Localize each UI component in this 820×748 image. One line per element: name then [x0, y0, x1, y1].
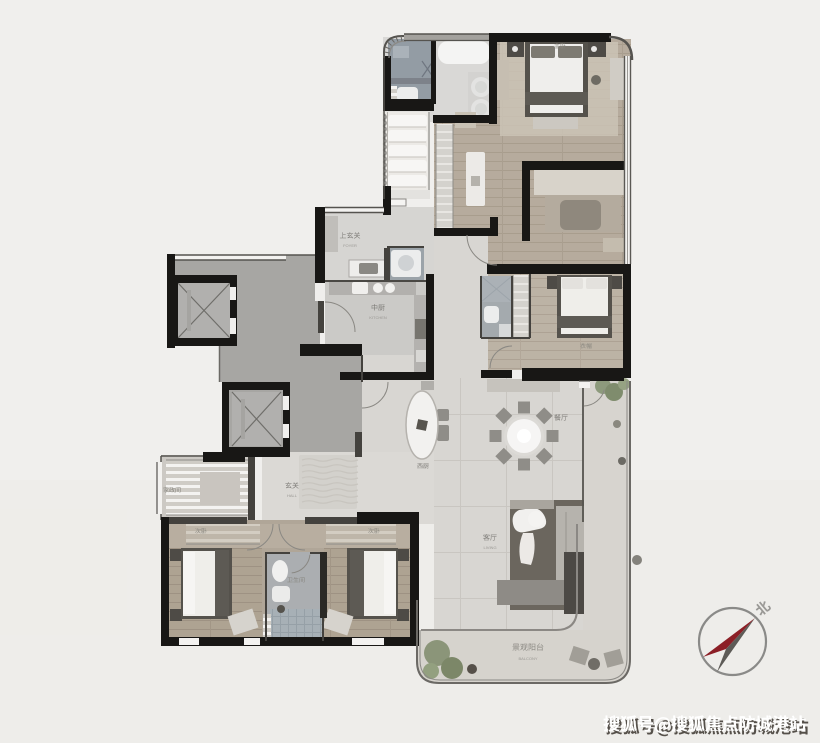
svg-text:KITCHEN: KITCHEN	[369, 315, 387, 320]
svg-text:HALL: HALL	[287, 493, 298, 498]
svg-text:LIVING: LIVING	[483, 545, 496, 550]
svg-text:BALCONY: BALCONY	[518, 656, 537, 661]
svg-text:FOYER: FOYER	[343, 243, 357, 248]
